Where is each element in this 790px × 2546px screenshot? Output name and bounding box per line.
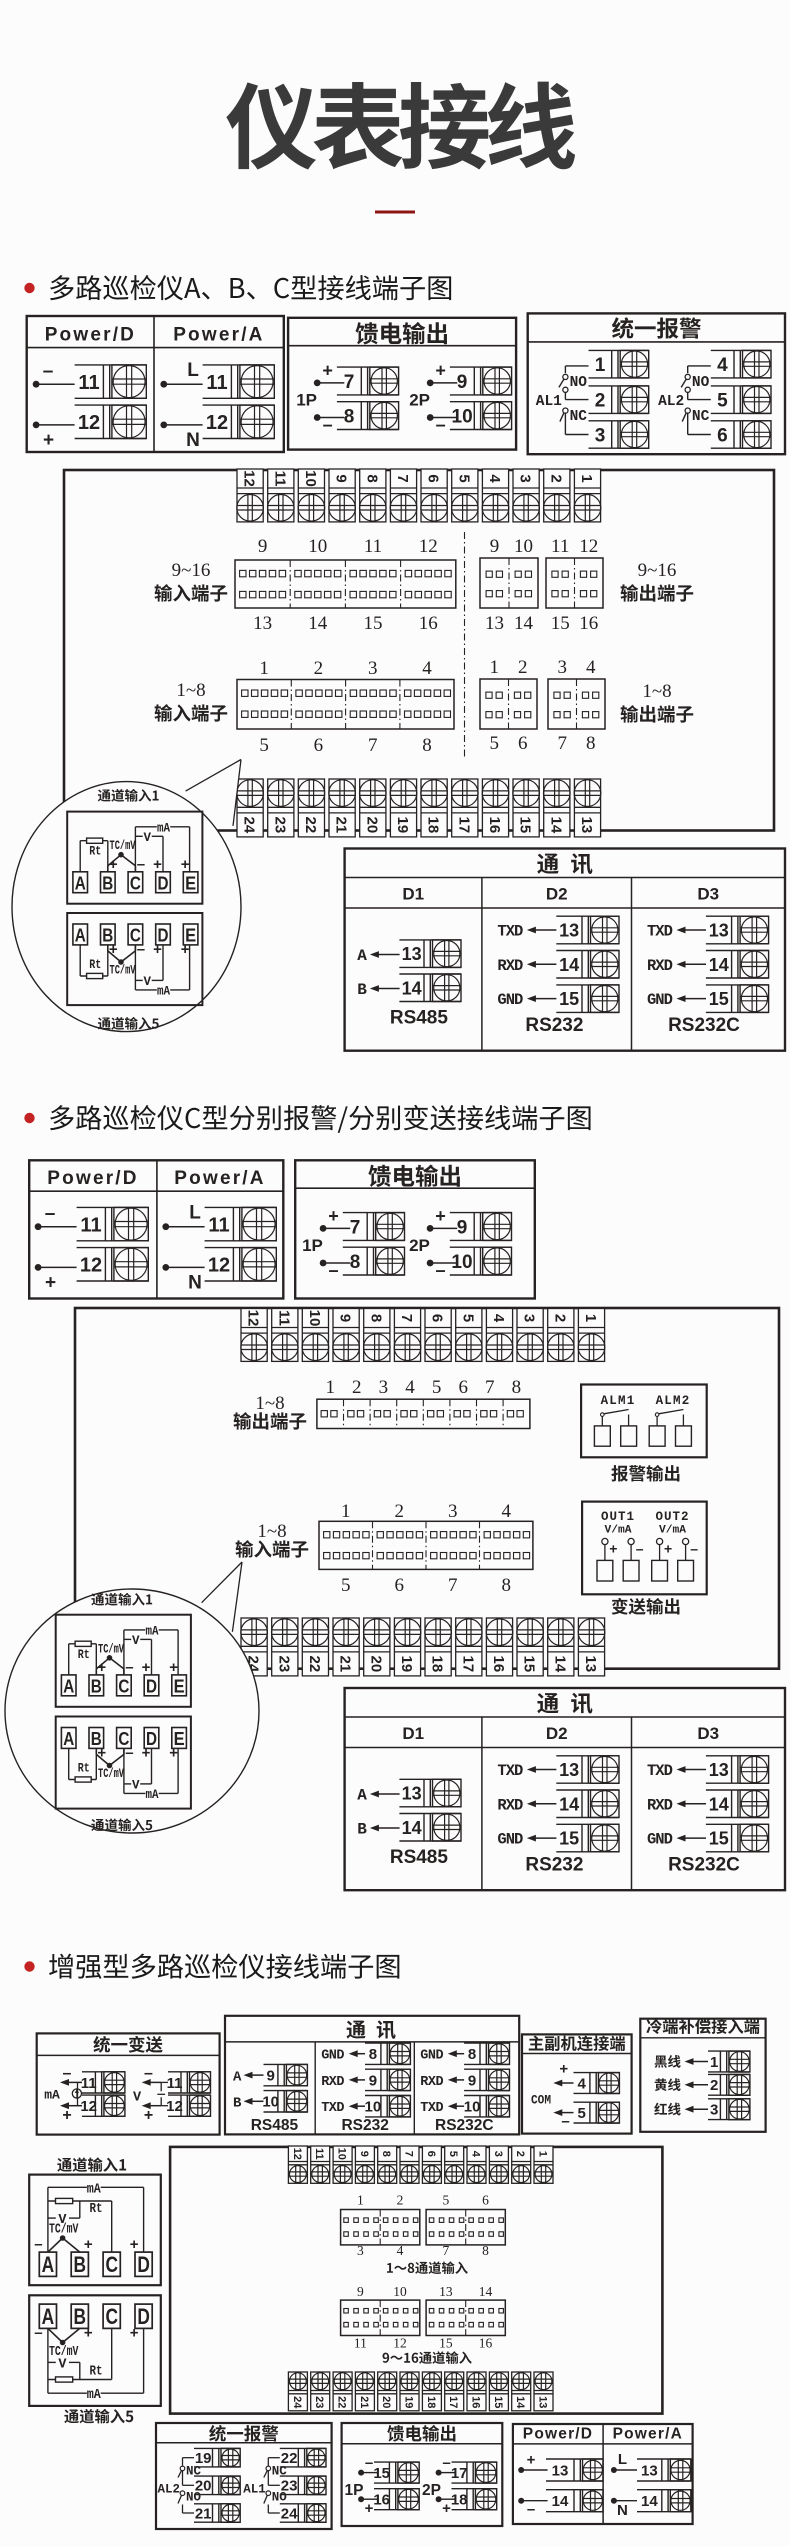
svg-text:15: 15: [559, 989, 579, 1009]
svg-text:D2: D2: [546, 885, 568, 904]
svg-text:NO: NO: [692, 375, 710, 391]
svg-text:D1: D1: [402, 885, 424, 904]
svg-text:4: 4: [490, 1314, 507, 1323]
svg-text:19: 19: [394, 817, 411, 834]
svg-text:24: 24: [241, 817, 258, 834]
svg-text:+: +: [322, 361, 333, 381]
svg-text:+: +: [144, 2107, 153, 2124]
svg-text:+: +: [97, 1745, 106, 1762]
svg-text:B: B: [357, 981, 367, 999]
svg-text:14: 14: [308, 613, 328, 634]
svg-text:6: 6: [458, 1377, 468, 1398]
svg-text:8: 8: [367, 1314, 384, 1322]
svg-text:21: 21: [358, 2396, 370, 2408]
svg-text:+: +: [109, 856, 118, 873]
svg-text:+: +: [435, 361, 446, 381]
svg-text:A: A: [63, 1729, 74, 1749]
svg-text:8: 8: [344, 406, 355, 427]
svg-text:1~8: 1~8: [176, 680, 205, 701]
svg-text:5: 5: [447, 2151, 459, 2157]
svg-text:A: A: [75, 926, 86, 946]
svg-text:N: N: [188, 1273, 202, 1294]
svg-text:TXD: TXD: [321, 2101, 344, 2116]
svg-text:Rt: Rt: [89, 844, 101, 859]
svg-text:23: 23: [313, 2396, 325, 2408]
svg-text:–: –: [323, 415, 333, 435]
svg-text:mA: mA: [87, 2388, 102, 2403]
svg-text:11: 11: [167, 2075, 183, 2092]
svg-text:21: 21: [195, 2505, 212, 2522]
svg-text:NO: NO: [272, 2491, 288, 2505]
svg-text:8: 8: [369, 2046, 377, 2063]
svg-text:TC/mV: TC/mV: [110, 964, 136, 978]
svg-text:2: 2: [394, 1501, 404, 1522]
svg-text:15: 15: [559, 1829, 579, 1849]
svg-text:V: V: [143, 975, 151, 989]
svg-text:12: 12: [80, 2098, 97, 2115]
svg-text:+: +: [153, 856, 162, 873]
svg-text:5: 5: [455, 474, 472, 482]
svg-text:mA: mA: [146, 1788, 159, 1802]
svg-text:17: 17: [459, 1656, 476, 1673]
svg-text:21: 21: [333, 817, 350, 834]
svg-text:GND: GND: [321, 2049, 344, 2064]
svg-text:3: 3: [368, 658, 378, 679]
svg-text:+: +: [169, 1659, 178, 1676]
svg-text:B: B: [233, 2096, 242, 2112]
svg-text:5: 5: [443, 2192, 450, 2207]
svg-text:TXD: TXD: [647, 1762, 673, 1780]
svg-text:5: 5: [489, 733, 499, 754]
svg-text:+: +: [142, 1745, 151, 1762]
svg-text:+: +: [559, 2061, 568, 2078]
svg-text:ALM2: ALM2: [656, 1394, 691, 1408]
svg-text:RS485: RS485: [251, 2117, 299, 2134]
svg-text:2: 2: [397, 2192, 404, 2207]
svg-text:5: 5: [578, 2105, 586, 2122]
svg-text:V: V: [143, 831, 151, 845]
svg-text:A: A: [42, 2304, 55, 2329]
svg-text:18: 18: [425, 817, 442, 834]
svg-text:COM: COM: [531, 2093, 551, 2108]
svg-text:4: 4: [470, 2151, 482, 2158]
svg-text:11: 11: [81, 2075, 97, 2092]
svg-text:+: +: [365, 2500, 374, 2517]
svg-text:1~8: 1~8: [257, 1521, 286, 1542]
svg-text:1: 1: [578, 474, 595, 482]
svg-text:RS232C: RS232C: [435, 2117, 494, 2134]
svg-text:4: 4: [486, 474, 503, 483]
svg-text:5: 5: [259, 735, 269, 756]
svg-text:10: 10: [464, 2099, 481, 2116]
svg-text:–: –: [125, 1659, 133, 1676]
svg-text:–: –: [435, 1260, 445, 1280]
svg-text:13: 13: [559, 1760, 579, 1780]
svg-text:C: C: [118, 1676, 129, 1696]
svg-text:GND: GND: [497, 991, 523, 1009]
svg-text:8: 8: [586, 733, 596, 754]
svg-text:16: 16: [479, 2335, 493, 2350]
svg-text:D1: D1: [402, 1724, 424, 1743]
svg-text:2: 2: [710, 2077, 718, 2094]
svg-text:11: 11: [206, 372, 227, 394]
svg-text:12: 12: [291, 2148, 303, 2160]
svg-text:3: 3: [557, 657, 567, 678]
svg-text:C: C: [105, 2304, 118, 2329]
svg-text:–: –: [34, 2324, 42, 2341]
svg-text:7: 7: [394, 474, 411, 482]
svg-text:+: +: [130, 2324, 139, 2341]
svg-text:Rt: Rt: [78, 1761, 90, 1776]
svg-text:16: 16: [486, 817, 503, 834]
svg-text:–: –: [144, 2065, 153, 2082]
svg-text:19: 19: [403, 2396, 415, 2408]
svg-text:–: –: [442, 2455, 450, 2472]
svg-text:6: 6: [482, 2192, 489, 2207]
svg-text:10: 10: [365, 2099, 382, 2116]
svg-text:D3: D3: [697, 1724, 719, 1743]
svg-text:14: 14: [514, 613, 534, 634]
svg-text:1~8: 1~8: [642, 681, 671, 702]
svg-text:9: 9: [369, 2072, 377, 2089]
svg-text:2: 2: [352, 1377, 362, 1398]
svg-text:B: B: [74, 2252, 87, 2277]
svg-text:5: 5: [341, 1575, 351, 1596]
svg-text:12: 12: [245, 1310, 262, 1327]
svg-text:9: 9: [258, 536, 268, 557]
svg-text:12: 12: [579, 536, 598, 557]
svg-text:+: +: [609, 1541, 617, 1557]
svg-text:7: 7: [350, 1217, 361, 1238]
svg-text:13: 13: [582, 1656, 599, 1673]
svg-text:D2: D2: [546, 1724, 568, 1743]
svg-text:Power/A: Power/A: [174, 1168, 265, 1189]
svg-text:+: +: [153, 941, 162, 958]
svg-text:14: 14: [547, 817, 564, 834]
svg-text:RS485: RS485: [390, 1007, 449, 1028]
svg-text:Power/D: Power/D: [523, 2426, 593, 2443]
svg-text:GND: GND: [647, 1831, 673, 1849]
svg-text:Power/D: Power/D: [47, 1168, 138, 1189]
svg-text:14: 14: [402, 978, 422, 998]
svg-text:5: 5: [717, 390, 728, 411]
svg-text:D: D: [146, 1676, 157, 1696]
svg-text:NC: NC: [186, 2465, 202, 2479]
svg-text:RS232: RS232: [525, 1015, 583, 1036]
svg-text:D3: D3: [697, 885, 719, 904]
svg-text:TXD: TXD: [497, 923, 523, 941]
svg-text:5: 5: [432, 1377, 442, 1398]
svg-text:6: 6: [717, 425, 728, 446]
svg-text:1P: 1P: [302, 1236, 323, 1255]
svg-text:1: 1: [341, 1501, 351, 1522]
svg-text:TC/mV: TC/mV: [98, 1642, 124, 1656]
svg-text:+: +: [328, 1206, 339, 1226]
svg-text:TC/mV: TC/mV: [49, 2345, 79, 2360]
svg-text:TC/mV: TC/mV: [110, 839, 136, 853]
svg-text:RS232: RS232: [341, 2117, 388, 2134]
svg-text:AL1: AL1: [243, 2483, 266, 2497]
svg-text:3: 3: [710, 2102, 718, 2119]
svg-text:A: A: [233, 2070, 242, 2086]
svg-text:9: 9: [267, 2068, 275, 2085]
svg-text:3: 3: [517, 474, 534, 482]
svg-text:10: 10: [308, 536, 327, 557]
svg-text:15: 15: [709, 1829, 729, 1849]
svg-text:10: 10: [393, 2284, 407, 2299]
svg-text:1~8: 1~8: [255, 1393, 284, 1414]
svg-text:mA: mA: [44, 2088, 60, 2103]
svg-text:–: –: [561, 2113, 569, 2130]
svg-text:6: 6: [518, 733, 528, 754]
svg-text:13: 13: [709, 1760, 729, 1780]
svg-text:V/mA: V/mA: [605, 1525, 632, 1537]
svg-text:–: –: [527, 2501, 535, 2518]
svg-text:V: V: [133, 2091, 142, 2106]
svg-text:10: 10: [452, 406, 473, 427]
svg-text:Power/A: Power/A: [613, 2426, 683, 2443]
svg-text:13: 13: [402, 1784, 422, 1804]
svg-text:18: 18: [429, 1656, 446, 1673]
svg-text:11: 11: [78, 372, 99, 394]
svg-text:14: 14: [551, 1656, 568, 1673]
svg-text:RS232: RS232: [525, 1855, 583, 1876]
svg-text:7: 7: [443, 2243, 450, 2258]
svg-text:6: 6: [425, 474, 442, 482]
svg-text:8: 8: [501, 1575, 511, 1596]
svg-text:16: 16: [373, 2492, 390, 2509]
svg-text:3: 3: [448, 1501, 458, 1522]
svg-text:1: 1: [595, 355, 606, 376]
svg-text:13: 13: [641, 2462, 658, 2479]
svg-text:TXD: TXD: [647, 923, 673, 941]
svg-text:12: 12: [208, 1255, 230, 1277]
svg-text:OUT2: OUT2: [655, 1510, 689, 1524]
svg-text:+: +: [130, 2236, 139, 2253]
svg-text:A: A: [357, 1787, 367, 1805]
svg-text:14: 14: [709, 955, 729, 975]
svg-text:NC: NC: [570, 409, 588, 425]
svg-text:L: L: [618, 2451, 627, 2468]
svg-text:RXD: RXD: [497, 957, 523, 975]
svg-text:8: 8: [512, 1377, 522, 1398]
svg-text:13: 13: [537, 2396, 549, 2408]
svg-text:8: 8: [380, 2151, 392, 2157]
svg-text:NO: NO: [186, 2491, 202, 2505]
svg-text:AL1: AL1: [536, 394, 562, 410]
svg-text:6: 6: [425, 2151, 437, 2157]
svg-text:15: 15: [373, 2465, 390, 2482]
svg-text:–: –: [436, 415, 446, 435]
svg-text:1: 1: [582, 1314, 599, 1322]
svg-text:11: 11: [275, 1310, 292, 1326]
svg-text:2P: 2P: [409, 1236, 430, 1255]
svg-text:–: –: [34, 2236, 42, 2253]
svg-text:11: 11: [354, 2335, 367, 2350]
svg-text:V: V: [132, 1778, 140, 1792]
svg-text:13: 13: [439, 2284, 453, 2299]
svg-text:AL2: AL2: [157, 2483, 180, 2497]
svg-text:14: 14: [514, 2396, 526, 2409]
svg-text:C: C: [105, 2252, 118, 2277]
svg-text:24: 24: [291, 2396, 303, 2409]
svg-text:TC/mV: TC/mV: [49, 2223, 79, 2238]
svg-text:6: 6: [314, 735, 324, 756]
svg-text:V/mA: V/mA: [659, 1525, 686, 1537]
svg-text:17: 17: [447, 2396, 459, 2408]
svg-text:12: 12: [393, 2335, 407, 2350]
svg-text:13: 13: [402, 944, 422, 964]
svg-text:N: N: [186, 430, 200, 451]
svg-text:+: +: [43, 430, 54, 451]
svg-text:14: 14: [641, 2493, 658, 2510]
svg-text:3: 3: [492, 2151, 504, 2157]
svg-text:7: 7: [448, 1575, 458, 1596]
svg-text:14: 14: [559, 1794, 579, 1814]
svg-text:24: 24: [281, 2505, 298, 2522]
svg-text:14: 14: [709, 1794, 729, 1814]
svg-text:8: 8: [468, 2046, 476, 2063]
svg-text:7: 7: [557, 733, 567, 754]
svg-text:D: D: [137, 2304, 150, 2329]
svg-text:A: A: [42, 2252, 55, 2277]
svg-text:14: 14: [559, 955, 579, 975]
svg-text:ALM1: ALM1: [601, 1394, 636, 1408]
svg-text:12: 12: [78, 412, 100, 434]
svg-text:19: 19: [398, 1656, 415, 1673]
svg-text:Rt: Rt: [78, 1647, 90, 1662]
svg-text:+: +: [169, 1745, 178, 1762]
svg-text:13: 13: [253, 613, 272, 634]
svg-text:4: 4: [717, 355, 728, 376]
svg-text:RS232C: RS232C: [668, 1855, 740, 1876]
svg-text:8: 8: [363, 474, 380, 482]
svg-text:NC: NC: [272, 2465, 288, 2479]
svg-text:B: B: [357, 1821, 367, 1839]
svg-text:15: 15: [521, 1656, 538, 1673]
svg-text:OUT1: OUT1: [601, 1510, 635, 1524]
svg-text:13: 13: [552, 2462, 569, 2479]
svg-text:15: 15: [492, 2396, 504, 2408]
svg-text:14: 14: [402, 1818, 422, 1838]
svg-text:RS232C: RS232C: [668, 1015, 740, 1036]
svg-text:9: 9: [457, 372, 468, 393]
svg-text:15: 15: [551, 613, 570, 634]
svg-text:V: V: [132, 1634, 140, 1648]
svg-text:9: 9: [333, 474, 350, 482]
svg-text:17: 17: [455, 817, 472, 834]
svg-text:1: 1: [259, 658, 269, 679]
svg-text:4: 4: [578, 2075, 587, 2092]
svg-text:12: 12: [166, 2098, 183, 2115]
svg-text:11: 11: [80, 1214, 101, 1236]
svg-text:2: 2: [547, 474, 564, 482]
svg-text:RXD: RXD: [321, 2075, 344, 2090]
svg-text:11: 11: [271, 471, 288, 487]
svg-text:4: 4: [422, 658, 432, 679]
svg-text:NC: NC: [692, 409, 710, 425]
svg-text:N: N: [617, 2502, 628, 2519]
svg-text:Power/D: Power/D: [45, 325, 136, 346]
svg-text:9: 9: [357, 2284, 364, 2299]
svg-text:6: 6: [429, 1314, 446, 1322]
svg-text:3: 3: [379, 1377, 389, 1398]
svg-text:8: 8: [350, 1252, 361, 1273]
svg-text:–: –: [125, 1745, 133, 1762]
svg-text:16: 16: [490, 1656, 507, 1673]
svg-text:10: 10: [302, 470, 319, 487]
svg-text:15: 15: [709, 989, 729, 1009]
svg-text:Power/A: Power/A: [173, 325, 264, 346]
svg-text:RXD: RXD: [420, 2075, 443, 2090]
svg-text:GND: GND: [497, 1831, 523, 1849]
svg-text:20: 20: [380, 2396, 392, 2408]
svg-text:+: +: [527, 2452, 536, 2469]
svg-text:RS485: RS485: [390, 1847, 449, 1868]
svg-text:2: 2: [314, 658, 324, 679]
svg-text:C: C: [130, 873, 141, 893]
svg-text:2: 2: [595, 390, 606, 411]
svg-text:–: –: [636, 1541, 644, 1557]
svg-text:+: +: [45, 1273, 56, 1294]
svg-text:20: 20: [363, 817, 380, 834]
svg-text:2P: 2P: [409, 391, 430, 410]
svg-text:22: 22: [302, 817, 319, 834]
svg-text:+: +: [181, 941, 190, 958]
svg-text:10: 10: [514, 536, 533, 557]
svg-text:11: 11: [313, 2148, 325, 2160]
svg-text:7: 7: [344, 372, 355, 393]
svg-text:12: 12: [419, 536, 438, 557]
svg-text:+: +: [664, 1541, 672, 1557]
svg-text:TXD: TXD: [420, 2101, 443, 2116]
svg-text:–: –: [328, 1260, 338, 1280]
svg-text:Rt: Rt: [89, 957, 101, 972]
svg-text:B: B: [91, 1676, 102, 1696]
svg-text:+: +: [435, 1206, 446, 1226]
svg-text:+: +: [84, 2236, 93, 2253]
svg-text:9: 9: [457, 1217, 468, 1238]
svg-text:L: L: [187, 360, 199, 381]
svg-text:17: 17: [451, 2465, 468, 2482]
svg-text:E: E: [185, 873, 196, 893]
svg-text:9: 9: [468, 2072, 476, 2089]
svg-text:Rt: Rt: [90, 2364, 103, 2380]
svg-text:11: 11: [364, 536, 382, 557]
svg-text:6: 6: [394, 1575, 404, 1596]
svg-text:7: 7: [398, 1314, 415, 1322]
svg-text:RXD: RXD: [647, 1796, 673, 1814]
svg-text:+: +: [62, 2107, 71, 2124]
svg-text:14: 14: [479, 2284, 493, 2299]
svg-text:15: 15: [439, 2335, 453, 2350]
svg-text:+: +: [142, 1659, 151, 1676]
svg-text:18: 18: [425, 2396, 437, 2408]
svg-text:3: 3: [595, 425, 606, 446]
svg-text:TXD: TXD: [497, 1762, 523, 1780]
svg-text:13: 13: [709, 921, 729, 941]
svg-text:14: 14: [552, 2493, 569, 2510]
svg-text:9: 9: [358, 2151, 370, 2157]
svg-text:8: 8: [422, 735, 432, 756]
svg-text:2: 2: [514, 2151, 526, 2157]
svg-text:9: 9: [490, 536, 500, 557]
svg-text:1: 1: [325, 1377, 335, 1398]
svg-text:5: 5: [459, 1314, 476, 1322]
svg-text:mA: mA: [146, 1624, 159, 1638]
svg-text:1: 1: [357, 2192, 364, 2207]
svg-text:B: B: [102, 873, 113, 893]
